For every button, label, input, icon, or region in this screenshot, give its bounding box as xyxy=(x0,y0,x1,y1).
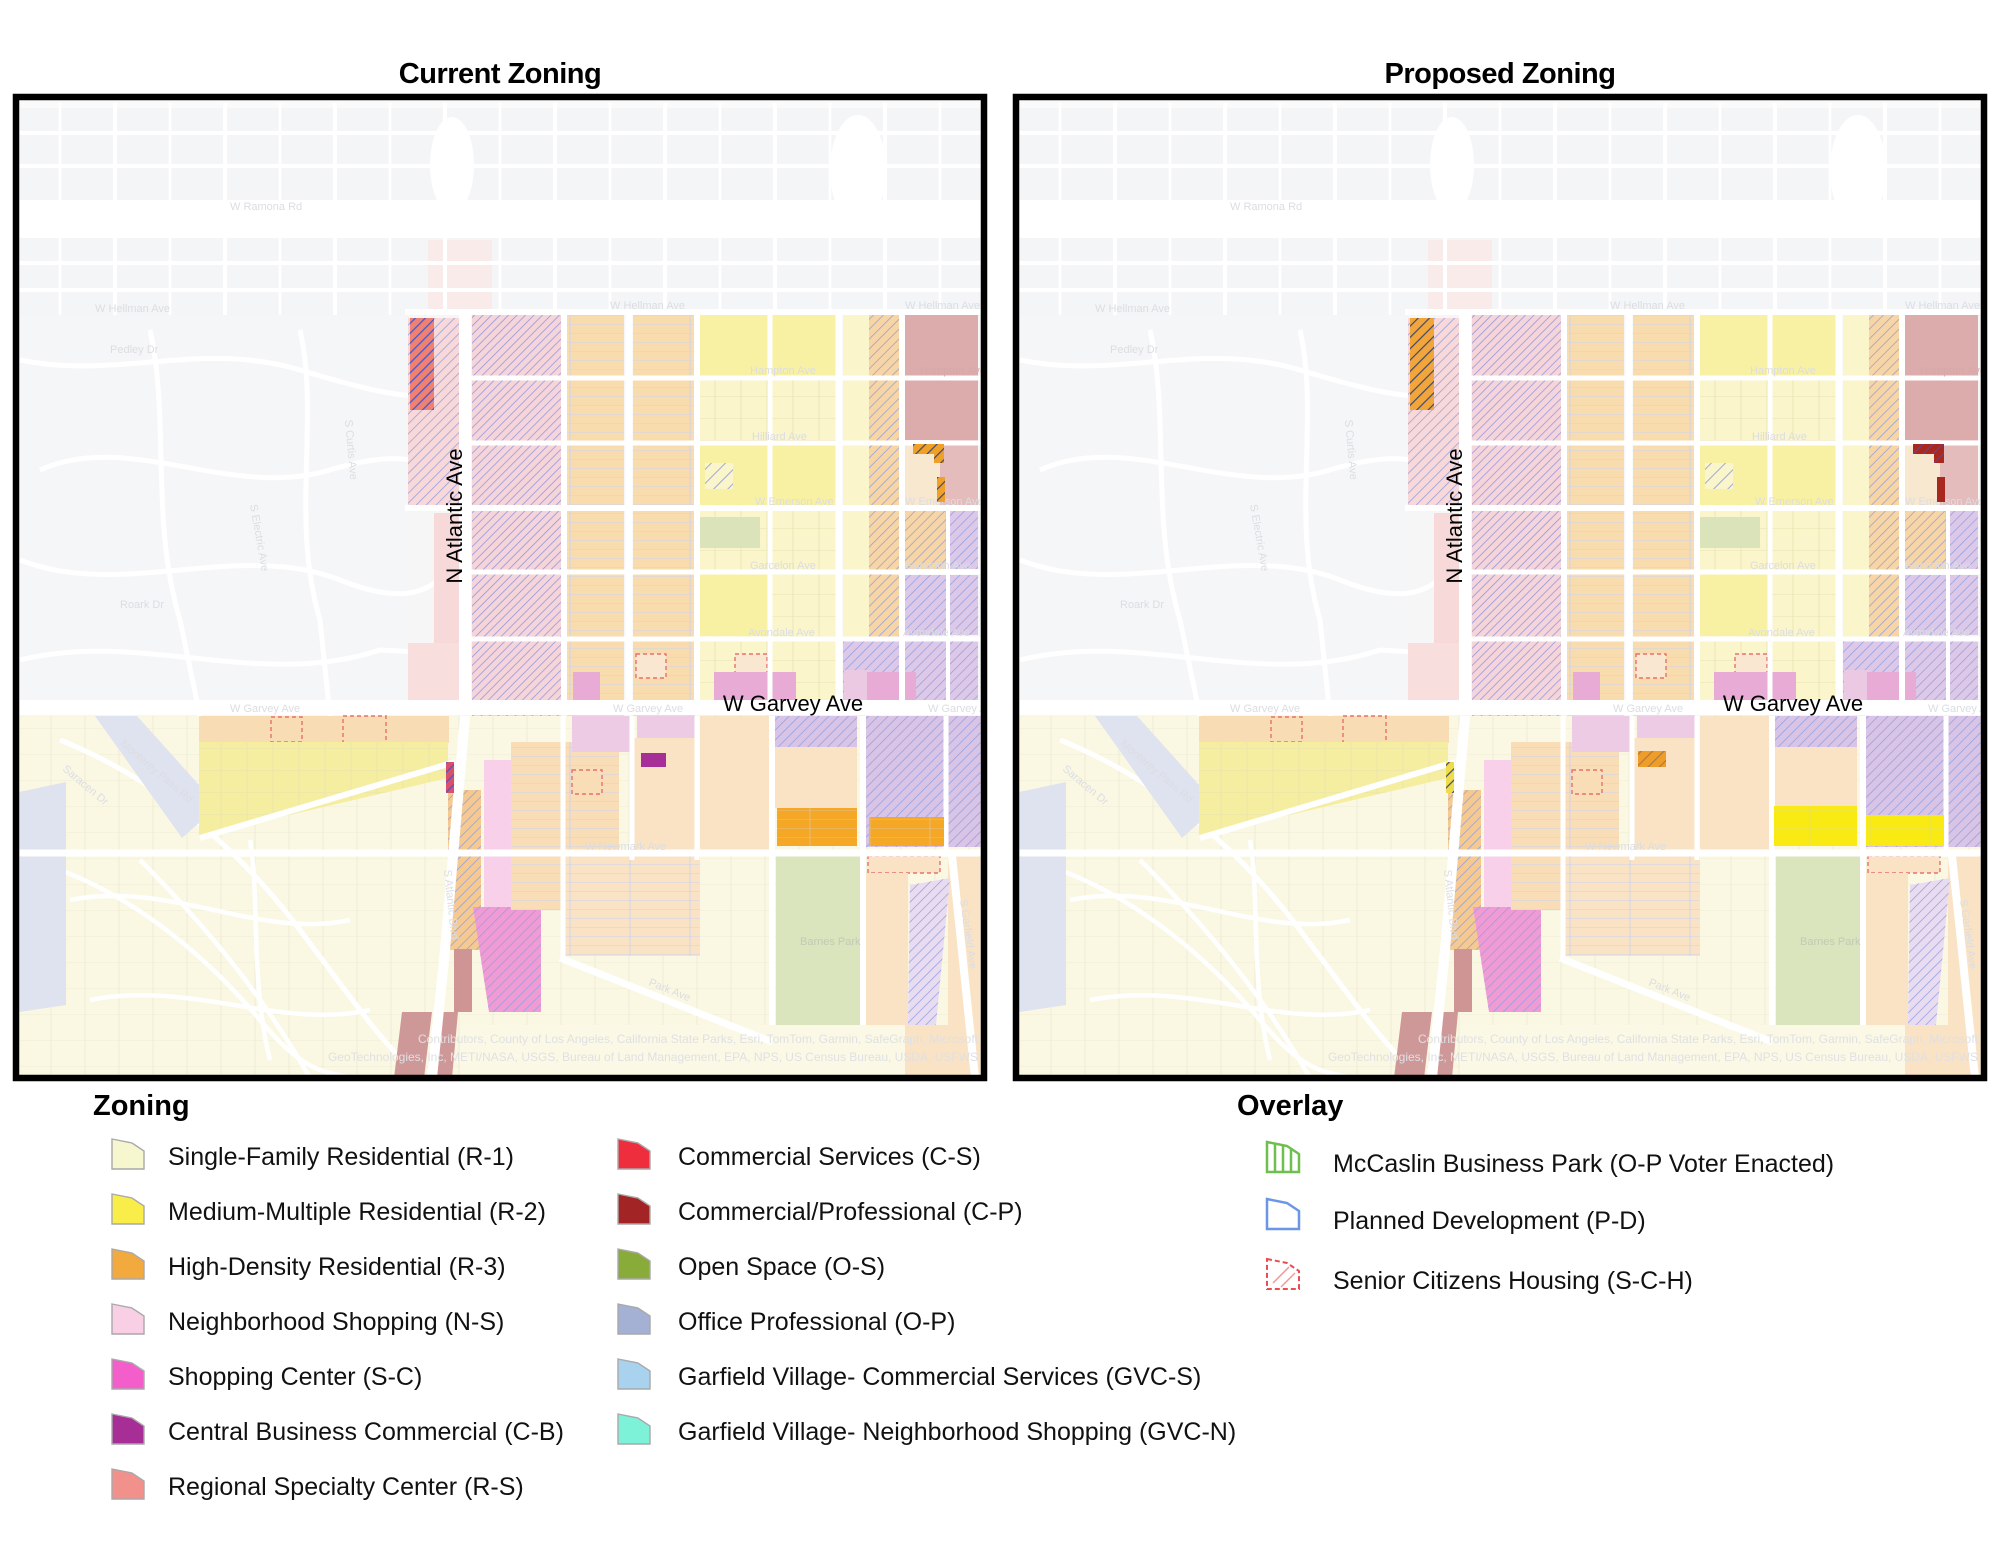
svg-text:Single-Family Residential (R-1: Single-Family Residential (R-1) xyxy=(168,1143,514,1171)
svg-text:Senior Citizens Housing (S-C-H: Senior Citizens Housing (S-C-H) xyxy=(1333,1267,1693,1295)
svg-text:Current Zoning: Current Zoning xyxy=(399,58,601,90)
svg-text:Overlay: Overlay xyxy=(1237,1090,1343,1122)
svg-text:Proposed Zoning: Proposed Zoning xyxy=(1385,58,1616,90)
svg-text:Zoning: Zoning xyxy=(93,1090,190,1122)
svg-text:Open Space (O-S): Open Space (O-S) xyxy=(678,1253,885,1281)
svg-text:Garfield Village- Commercial S: Garfield Village- Commercial Services (G… xyxy=(678,1363,1201,1391)
svg-text:Shopping Center (S-C): Shopping Center (S-C) xyxy=(168,1363,422,1391)
svg-text:Office Professional (O-P): Office Professional (O-P) xyxy=(678,1308,955,1336)
svg-text:High-Density Residential (R-3): High-Density Residential (R-3) xyxy=(168,1253,506,1281)
svg-text:Medium-Multiple Residential (R: Medium-Multiple Residential (R-2) xyxy=(168,1198,546,1226)
svg-text:Regional Specialty Center (R-S: Regional Specialty Center (R-S) xyxy=(168,1473,524,1501)
svg-text:Planned Development (P-D): Planned Development (P-D) xyxy=(1333,1207,1646,1235)
svg-text:Commercial/Professional (C-P): Commercial/Professional (C-P) xyxy=(678,1198,1023,1226)
svg-text:Commercial Services (C-S): Commercial Services (C-S) xyxy=(678,1143,981,1171)
svg-text:McCaslin Business Park (O-P Vo: McCaslin Business Park (O-P Voter Enacte… xyxy=(1333,1150,1834,1178)
svg-text:Garfield Village- Neighborhood: Garfield Village- Neighborhood Shopping … xyxy=(678,1418,1236,1446)
svg-text:Central Business Commercial (C: Central Business Commercial (C-B) xyxy=(168,1418,564,1446)
svg-text:Neighborhood Shopping (N-S): Neighborhood Shopping (N-S) xyxy=(168,1308,504,1336)
